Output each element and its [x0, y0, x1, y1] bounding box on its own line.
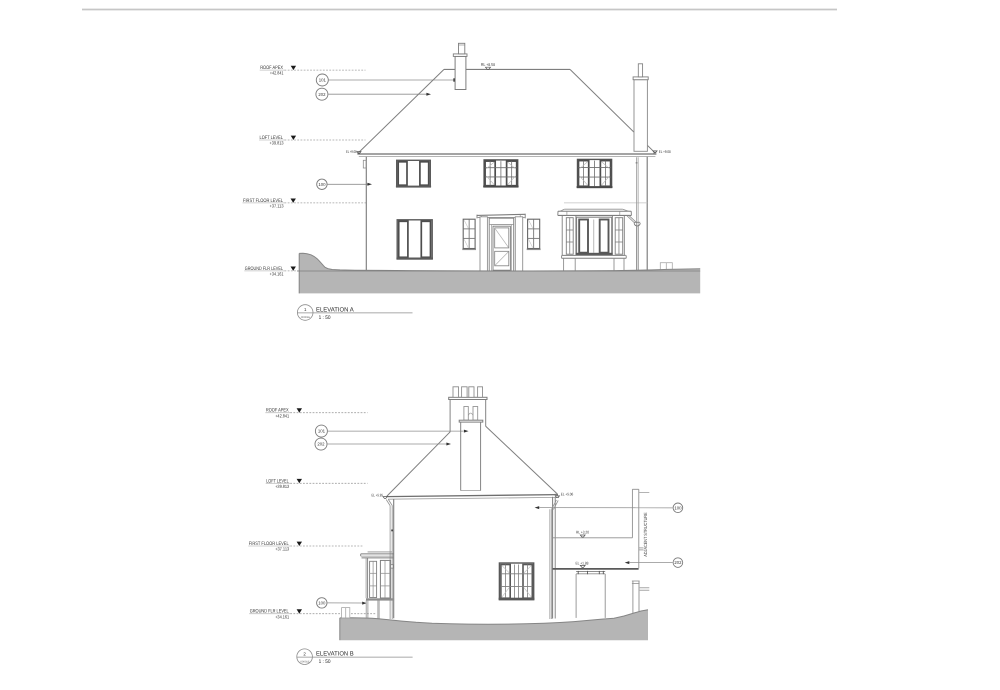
svg-text:+39.813: +39.813 [275, 484, 289, 489]
svg-text:ELEVATION B: ELEVATION B [316, 651, 354, 658]
svg-text:EL +5.95: EL +5.95 [372, 492, 384, 497]
svg-text:101: 101 [318, 429, 326, 434]
svg-text:1 : 50: 1 : 50 [319, 659, 331, 665]
svg-text:ADJACENT STRUCTURE: ADJACENT STRUCTURE [643, 512, 648, 556]
svg-text:EL +1.88: EL +1.88 [576, 560, 589, 565]
svg-text:EL +5.06: EL +5.06 [561, 491, 574, 496]
svg-text:EL +9.08: EL +9.08 [659, 149, 671, 154]
svg-text:202: 202 [317, 442, 325, 447]
svg-text:RL +8.58: RL +8.58 [481, 62, 496, 67]
svg-text:RL +3.20: RL +3.20 [576, 530, 590, 535]
svg-text:+37.113: +37.113 [275, 547, 289, 552]
svg-text:100: 100 [318, 182, 326, 187]
svg-text:+39.813: +39.813 [270, 141, 284, 146]
svg-text:EL +9.08: EL +9.08 [346, 149, 357, 154]
svg-text:.00001E: .00001E [300, 660, 310, 663]
svg-text:1 : 50: 1 : 50 [319, 315, 331, 321]
svg-text:101: 101 [319, 78, 327, 83]
svg-text:+37.113: +37.113 [270, 204, 284, 209]
svg-text:+34.161: +34.161 [275, 614, 289, 619]
svg-text:.00001E: .00001E [300, 316, 310, 319]
svg-text:100: 100 [674, 505, 682, 510]
svg-text:202: 202 [674, 560, 682, 565]
svg-text:ELEVATION A: ELEVATION A [316, 306, 355, 313]
svg-text:+42.841: +42.841 [270, 71, 284, 76]
svg-text:+42.841: +42.841 [275, 413, 289, 418]
svg-text:+34.161: +34.161 [270, 272, 284, 277]
svg-text:100: 100 [318, 601, 326, 606]
svg-text:202: 202 [318, 92, 326, 97]
